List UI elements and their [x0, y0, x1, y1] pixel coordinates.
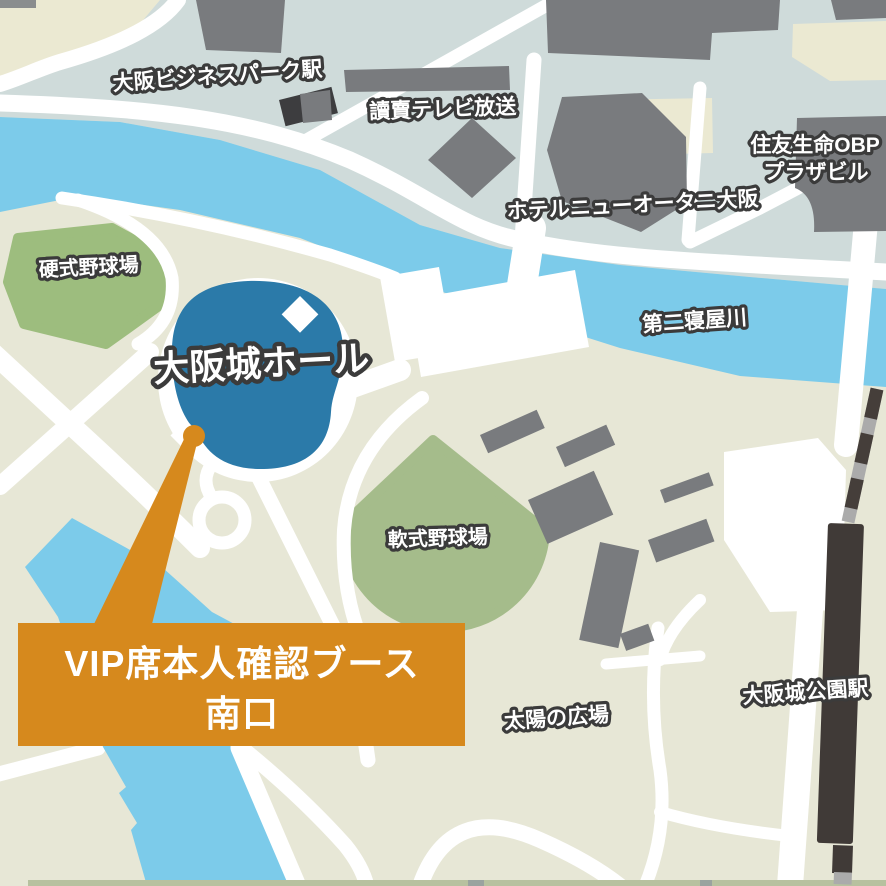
sumitomo-obp-label-line2: プラザビル [764, 161, 869, 184]
map-pin-dot [183, 425, 205, 447]
bottom-strip [28, 880, 886, 886]
sumitomo-obp-label-line1: 住友生命OBP [750, 133, 880, 157]
map-canvas: 大阪ビジネスパーク駅 讀賣テレビ放送 住友生命OBP プラザビル ホテルニューオ… [0, 0, 886, 886]
callout-line1: VIP席本人確認ブース [64, 643, 419, 684]
callout-line2: 南口 [205, 693, 279, 734]
softball-field-label: 軟式野球場 [387, 524, 488, 551]
top-left-sliver [0, 0, 36, 8]
access-map: 大阪ビジネスパーク駅 讀賣テレビ放送 住友生命OBP プラザビル ホテルニューオ… [0, 0, 886, 886]
